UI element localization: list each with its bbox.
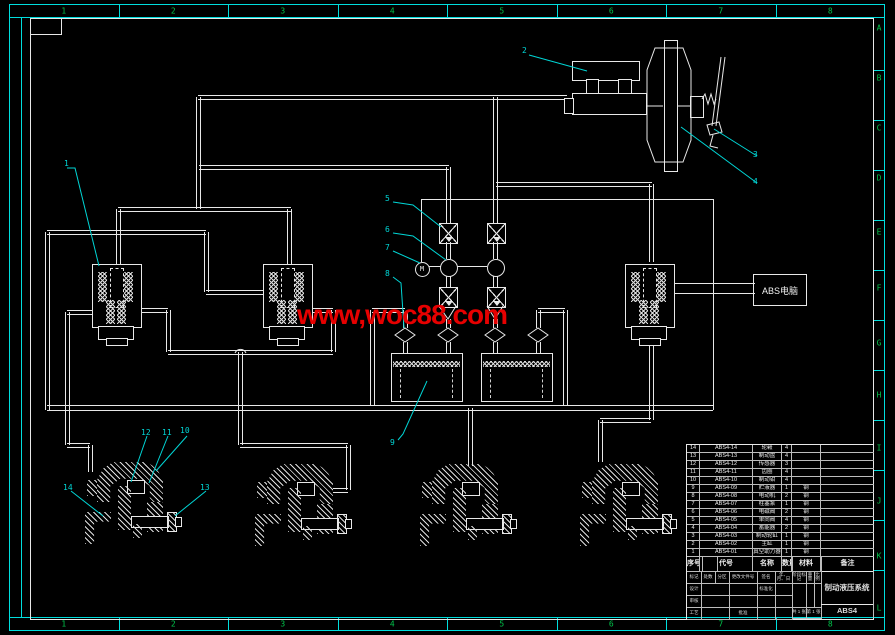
vacuum-booster [647,48,691,162]
brake-pedal-arm [712,57,725,126]
check-valve [528,328,548,342]
callout-leaders [67,55,757,516]
drawing-sheet: 1234567812345678ABCDEFGHIJKL ABS电脑 M [0,0,895,635]
brake-pedal-hook [710,135,718,148]
line-hop [235,349,246,353]
return-spring [702,94,716,104]
watermark: www,woc88.com [297,299,507,331]
